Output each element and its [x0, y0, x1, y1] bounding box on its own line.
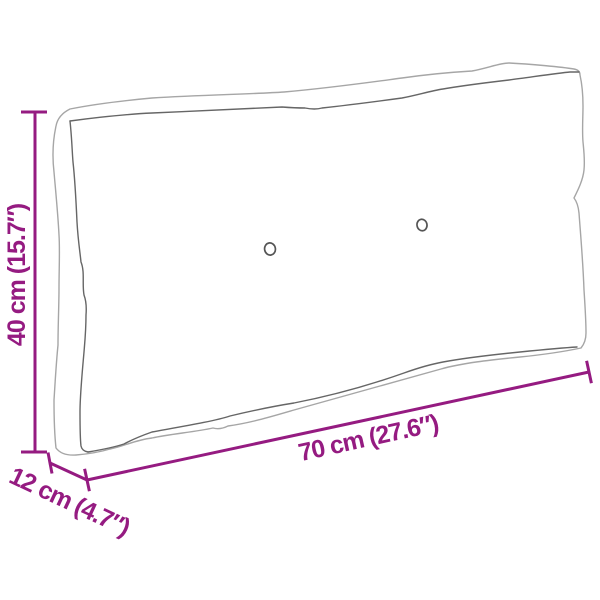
cushion-button-right [416, 218, 428, 231]
height-dimension-line: 40 cm (15.7″) [3, 112, 47, 452]
product-dimension-diagram: 40 cm (15.7″) 70 cm (27.6″) 12 cm (4.7″) [0, 0, 600, 600]
depth-dimension-line: 12 cm (4.7″) [5, 453, 135, 543]
cushion-illustration [53, 63, 586, 455]
dimension-diagram-canvas: 40 cm (15.7″) 70 cm (27.6″) 12 cm (4.7″) [0, 0, 600, 600]
width-dimension-main-line [87, 372, 589, 480]
depth-dimension-main-line [50, 463, 87, 480]
cushion-top-seam-line [70, 72, 579, 121]
cushion-button-left [264, 242, 277, 256]
height-dimension-label: 40 cm (15.7″) [3, 203, 31, 346]
depth-dimension-top-cap [48, 453, 52, 474]
cushion-outer-contour [53, 63, 586, 455]
width-dimension-line: 70 cm (27.6″) [85, 361, 592, 491]
cushion-left-seam-line [70, 121, 88, 452]
width-dimension-label: 70 cm (27.6″) [296, 409, 441, 467]
